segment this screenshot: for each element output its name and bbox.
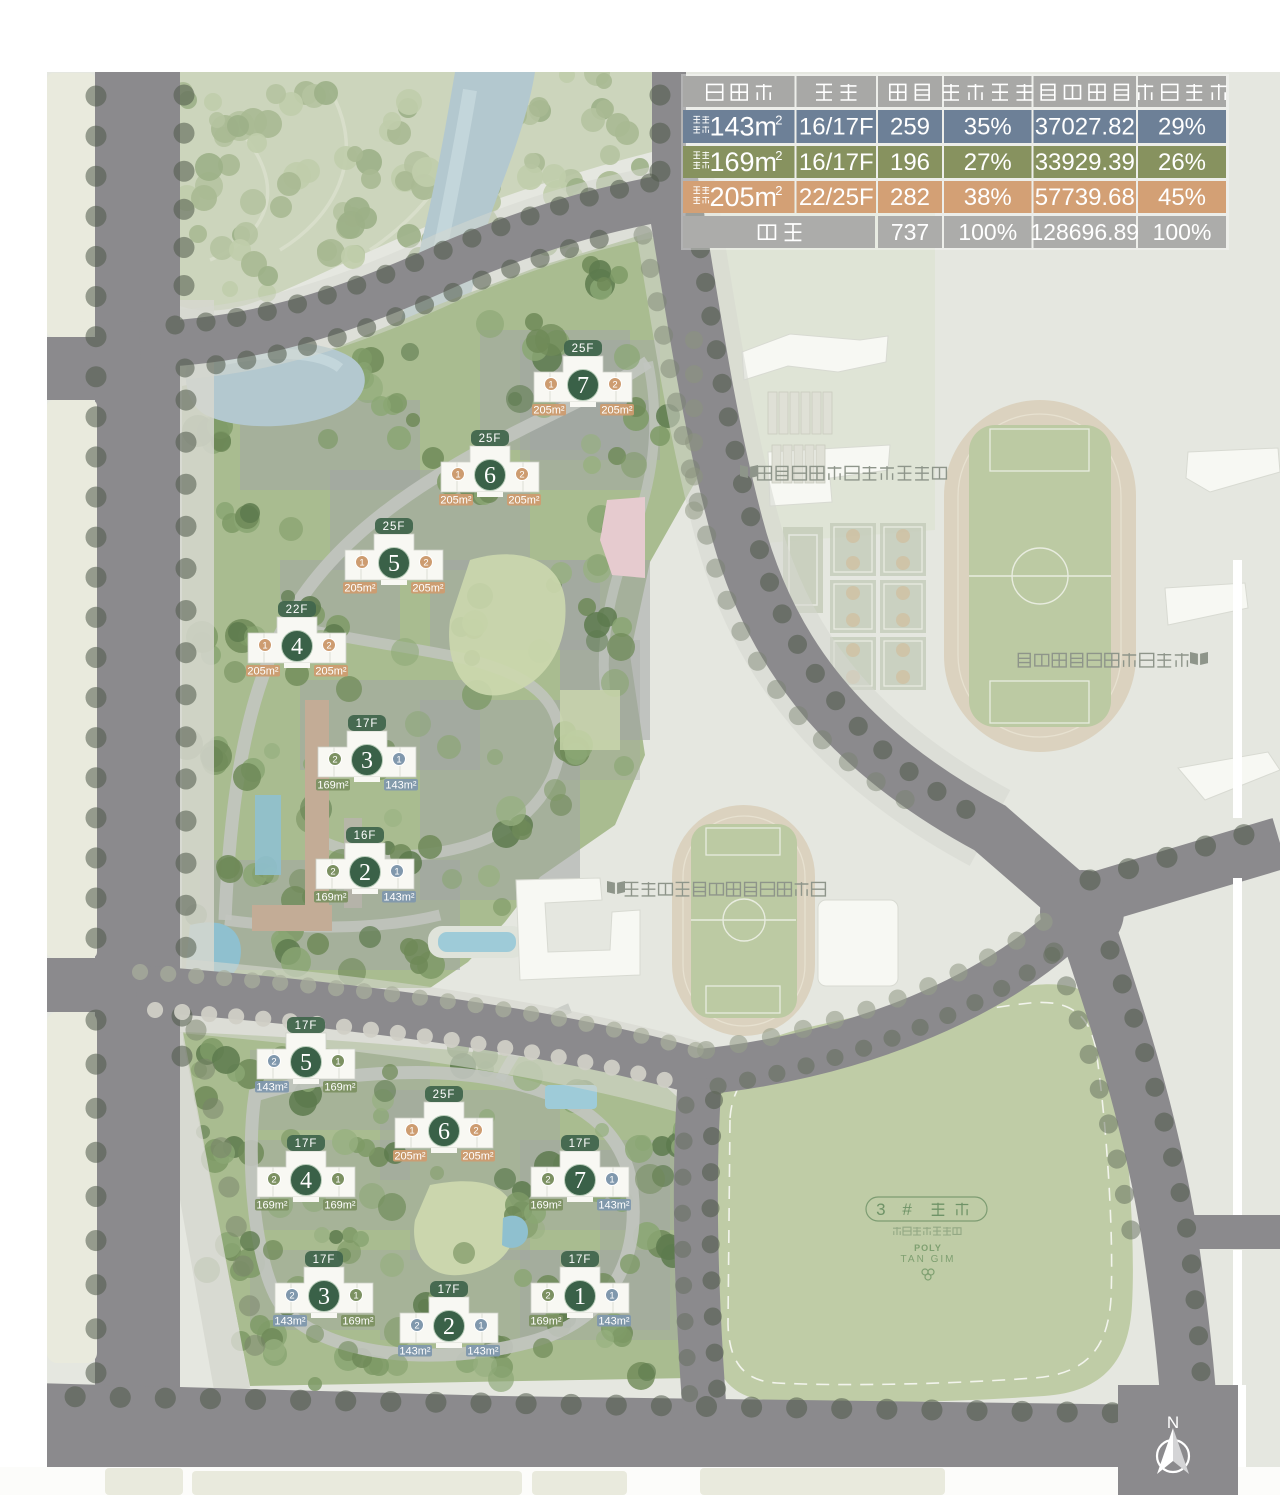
svg-text:143m²: 143m² <box>385 780 417 792</box>
svg-text:25F: 25F <box>383 521 406 533</box>
svg-text:1: 1 <box>574 1284 586 1310</box>
svg-text:17F: 17F <box>569 1138 592 1150</box>
svg-text:169m²: 169m² <box>317 780 349 792</box>
svg-text:2: 2 <box>271 1057 276 1068</box>
svg-text:26%: 26% <box>1158 149 1206 176</box>
svg-text:205m²: 205m² <box>412 583 444 595</box>
svg-text:2: 2 <box>545 1175 550 1186</box>
svg-text:2: 2 <box>443 1314 455 1340</box>
svg-text:205m²: 205m² <box>462 1151 494 1163</box>
svg-text:2: 2 <box>271 1175 276 1186</box>
svg-text:2: 2 <box>775 183 782 198</box>
svg-text:17F: 17F <box>356 718 379 730</box>
svg-text:22F: 22F <box>286 604 309 616</box>
svg-text:2: 2 <box>775 113 782 128</box>
svg-text:169m²: 169m² <box>530 1200 562 1212</box>
svg-text:2: 2 <box>473 1126 478 1137</box>
svg-text:3: 3 <box>361 748 373 774</box>
svg-text:128696.89: 128696.89 <box>1030 219 1139 245</box>
svg-text:169m²: 169m² <box>256 1200 288 1212</box>
svg-text:16/17F: 16/17F <box>799 149 874 176</box>
svg-text:27%: 27% <box>964 149 1012 176</box>
svg-text:2: 2 <box>545 1291 550 1302</box>
svg-text:2: 2 <box>775 148 782 163</box>
svg-text:57739.68: 57739.68 <box>1035 184 1135 211</box>
svg-text:37027.82: 37027.82 <box>1035 114 1135 141</box>
svg-text:1: 1 <box>335 1175 340 1186</box>
svg-text:4: 4 <box>291 634 303 660</box>
svg-text:169m²: 169m² <box>324 1200 356 1212</box>
svg-text:169m: 169m <box>709 147 777 177</box>
svg-text:33929.39: 33929.39 <box>1035 149 1135 176</box>
svg-text:16/17F: 16/17F <box>799 114 874 141</box>
svg-text:7: 7 <box>577 373 589 399</box>
svg-text:100%: 100% <box>1153 219 1212 245</box>
svg-text:5: 5 <box>388 551 400 577</box>
svg-text:1: 1 <box>396 755 401 766</box>
svg-text:143m²: 143m² <box>399 1346 431 1358</box>
svg-text:169m²: 169m² <box>530 1316 562 1328</box>
svg-text:1: 1 <box>262 641 267 652</box>
svg-text:205m²: 205m² <box>508 495 540 507</box>
svg-text:169m²: 169m² <box>324 1082 356 1094</box>
svg-text:2: 2 <box>519 470 524 481</box>
svg-text:3 #: 3 # <box>876 1200 918 1219</box>
svg-text:143m²: 143m² <box>383 892 415 904</box>
svg-text:205m²: 205m² <box>440 495 472 507</box>
svg-text:205m²: 205m² <box>315 666 347 678</box>
svg-text:143m²: 143m² <box>598 1316 630 1328</box>
svg-text:2: 2 <box>326 641 331 652</box>
svg-text:3: 3 <box>318 1284 330 1310</box>
svg-text:35%: 35% <box>964 114 1012 141</box>
svg-text:169m²: 169m² <box>315 892 347 904</box>
svg-text:282: 282 <box>890 184 930 211</box>
svg-text:143m²: 143m² <box>467 1346 499 1358</box>
svg-text:25F: 25F <box>433 1089 456 1101</box>
svg-text:100%: 100% <box>958 219 1017 245</box>
svg-text:2: 2 <box>330 867 335 878</box>
svg-text:2: 2 <box>332 755 337 766</box>
svg-text:2: 2 <box>414 1321 419 1332</box>
svg-text:205m²: 205m² <box>344 583 376 595</box>
svg-text:1: 1 <box>335 1057 340 1068</box>
svg-text:7: 7 <box>574 1168 586 1194</box>
svg-text:6: 6 <box>438 1119 450 1145</box>
svg-text:2: 2 <box>612 380 617 391</box>
svg-text:25F: 25F <box>479 433 502 445</box>
svg-text:1: 1 <box>409 1126 414 1137</box>
svg-text:205m²: 205m² <box>601 405 633 417</box>
svg-text:143m²: 143m² <box>256 1082 288 1094</box>
svg-text:1: 1 <box>609 1175 614 1186</box>
svg-text:6: 6 <box>484 463 496 489</box>
svg-text:22/25F: 22/25F <box>799 184 874 211</box>
svg-text:737: 737 <box>891 219 929 245</box>
svg-text:205m²: 205m² <box>394 1151 426 1163</box>
svg-text:38%: 38% <box>964 184 1012 211</box>
svg-text:29%: 29% <box>1158 114 1206 141</box>
svg-text:205m: 205m <box>709 182 777 212</box>
svg-text:17F: 17F <box>295 1138 318 1150</box>
svg-text:4: 4 <box>300 1168 312 1194</box>
svg-text:17F: 17F <box>313 1254 336 1266</box>
svg-text:1: 1 <box>478 1321 483 1332</box>
svg-text:17F: 17F <box>295 1020 318 1032</box>
svg-text:143m²: 143m² <box>598 1200 630 1212</box>
svg-text:205m²: 205m² <box>533 405 565 417</box>
svg-text:143m²: 143m² <box>274 1316 306 1328</box>
svg-text:25F: 25F <box>572 343 595 355</box>
svg-text:POLY: POLY <box>914 1243 942 1253</box>
svg-text:5: 5 <box>300 1050 312 1076</box>
svg-text:17F: 17F <box>569 1254 592 1266</box>
svg-text:1: 1 <box>609 1291 614 1302</box>
svg-text:1: 1 <box>359 558 364 569</box>
svg-text:2: 2 <box>359 860 371 886</box>
svg-text:2: 2 <box>423 558 428 569</box>
svg-text:1: 1 <box>548 380 553 391</box>
svg-text:205m²: 205m² <box>247 666 279 678</box>
svg-text:1: 1 <box>353 1291 358 1302</box>
svg-text:17F: 17F <box>438 1284 461 1296</box>
svg-text:169m²: 169m² <box>342 1316 374 1328</box>
svg-text:2: 2 <box>289 1291 294 1302</box>
svg-text:16F: 16F <box>354 830 377 842</box>
svg-text:259: 259 <box>890 114 930 141</box>
svg-text:TAN GIM: TAN GIM <box>901 1254 956 1265</box>
svg-text:1: 1 <box>455 470 460 481</box>
svg-text:45%: 45% <box>1158 184 1206 211</box>
svg-text:1: 1 <box>394 867 399 878</box>
svg-text:196: 196 <box>890 149 930 176</box>
svg-text:143m: 143m <box>709 112 777 142</box>
